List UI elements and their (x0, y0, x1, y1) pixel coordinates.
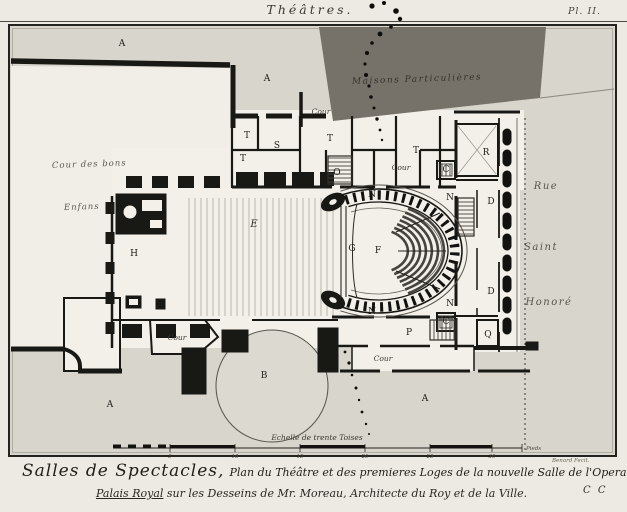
ink-spot (358, 399, 360, 401)
plan-label-n: N (446, 193, 454, 203)
scale-tick-30: 30 (489, 454, 496, 460)
plan-label-a: A (421, 394, 429, 404)
plan-label-t: T (240, 154, 246, 164)
plan-label-s: S (274, 141, 280, 151)
ink-spot (361, 411, 364, 414)
scale-tick-20: 20 (361, 454, 369, 460)
caption-rest: Plan du Théâtre et des premieres Loges d… (230, 466, 627, 479)
ink-spot (355, 387, 358, 390)
plan-label-d: D (487, 197, 494, 207)
plan-label-n: N (446, 299, 454, 309)
plan-label-a: A (118, 39, 126, 49)
plate-signature-mark: C C (583, 485, 607, 496)
plan-label-enfans: Enfans (63, 202, 100, 213)
ink-spot (368, 433, 370, 435)
plan-label-r: R (483, 148, 490, 158)
plan-label-o: O (333, 168, 340, 178)
ink-spot (364, 73, 368, 77)
plan-label-cour: Cour (374, 354, 393, 363)
plan-label-a: A (106, 400, 114, 410)
plan-label-g: G (348, 244, 355, 254)
scale-tick-25: 25 (426, 454, 434, 460)
ink-spot (365, 51, 369, 55)
plate-number: Pl. II. (568, 6, 601, 17)
scale-tick-10: 10 (232, 454, 239, 460)
scale-bar-label: Echelle de trente Toises (270, 433, 363, 442)
ink-spot (367, 84, 370, 87)
plan-label-saint: Saint (524, 242, 558, 253)
plan-label-a: A (263, 74, 271, 84)
plan-label-t: T (244, 131, 250, 141)
ink-spot (363, 62, 366, 65)
plan-label-n: N (368, 190, 376, 200)
engraved-plate-page: Théâtres. Pl. II. (0, 0, 627, 512)
caption-lead: Salles de Spectacles, (22, 461, 224, 481)
caption-line2-underlined: Palais Royal (96, 487, 163, 500)
plan-label-p: P (406, 328, 412, 338)
scale-bar-end-label: Pieds (525, 446, 541, 452)
plan-label-h: H (130, 249, 138, 259)
ink-spot (379, 129, 382, 132)
plan-label-q: Q (484, 330, 491, 340)
plan-label-d: D (487, 287, 494, 297)
plan-label-b: B (261, 371, 268, 381)
plan-label-n: N (368, 307, 376, 317)
plan-label-rue: Rue (533, 181, 558, 192)
plan-label-t: T (327, 134, 333, 144)
plan-label-cour: Cour (168, 333, 187, 342)
plan-label-c: C (443, 317, 450, 327)
scale-tick-5: 5 (168, 454, 172, 460)
ink-spot (351, 374, 354, 377)
ink-spot (370, 41, 374, 45)
ink-spot (369, 95, 373, 99)
plan-label-c: C (443, 165, 450, 175)
caption-line2-rest: sur les Desseins de Mr. Moreau, Architec… (163, 487, 527, 500)
ink-spot (389, 25, 393, 29)
plan-label-t: T (413, 146, 419, 156)
plan-label-f: F (375, 246, 381, 256)
theatre-plan-svg: Echelle de trente Toises Pieds 510152025… (0, 0, 627, 512)
plan-label-e: E (249, 219, 258, 230)
stage-floor-hatch (184, 198, 336, 316)
plan-label-cour: Cour (392, 163, 411, 172)
plan-label-honor-: Honoré (525, 297, 573, 308)
plate-caption-line2: Palais Royal sur les Desseins de Mr. Mor… (96, 487, 527, 500)
ink-spot (373, 107, 376, 110)
plan-label-cour: Cour (312, 107, 331, 116)
plate-caption-line1: Salles de Spectacles, Plan du Théâtre et… (22, 461, 627, 481)
ink-spot (365, 423, 367, 425)
scale-tick-15: 15 (297, 454, 304, 460)
ink-spot (378, 32, 383, 37)
ink-spot (398, 17, 402, 21)
ink-spot (381, 139, 383, 141)
ink-spot (347, 361, 350, 364)
ink-spot (344, 351, 347, 354)
ink-spot (375, 117, 378, 120)
plate-title: Théâtres. (150, 2, 470, 17)
